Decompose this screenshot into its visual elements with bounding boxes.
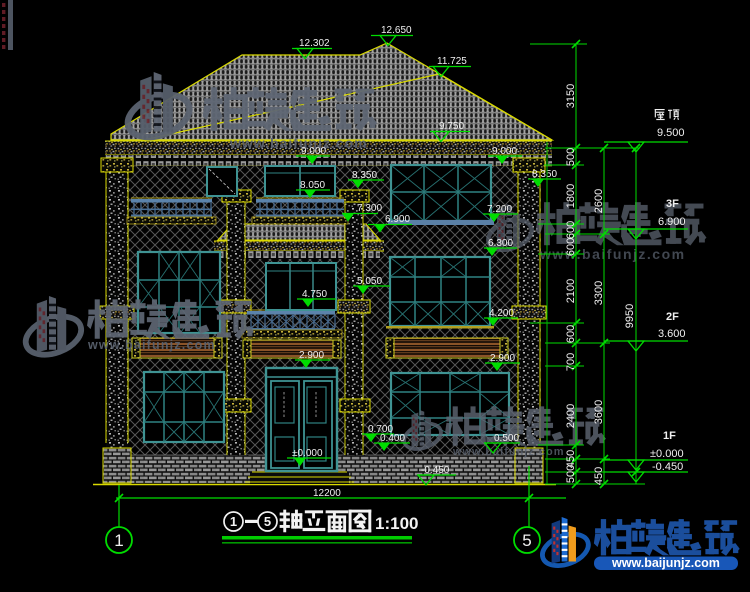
svg-text:9.000: 9.000 (301, 146, 326, 157)
svg-text:1: 1 (230, 514, 237, 529)
svg-text:8.050: 8.050 (300, 180, 325, 191)
svg-text:2.900: 2.900 (299, 350, 324, 361)
svg-text:-0.450: -0.450 (652, 461, 683, 473)
svg-text:2.900: 2.900 (490, 353, 515, 364)
svg-text:5: 5 (264, 514, 271, 529)
svg-text:450: 450 (593, 467, 605, 485)
svg-text:www.baifunjz.com: www.baifunjz.com (87, 338, 216, 352)
svg-text:±0.000: ±0.000 (650, 448, 684, 460)
svg-text:12.650: 12.650 (381, 25, 412, 36)
svg-text:1:100: 1:100 (375, 514, 418, 533)
svg-text:2F: 2F (666, 311, 679, 323)
svg-text:±0.000: ±0.000 (292, 448, 323, 459)
svg-text:5.050: 5.050 (357, 276, 382, 287)
svg-text:9.000: 9.000 (492, 146, 517, 157)
svg-text:www.baifunjz.com: www.baifunjz.com (229, 135, 368, 151)
svg-text:600: 600 (565, 325, 577, 343)
svg-text:11.725: 11.725 (437, 56, 467, 67)
svg-text:5: 5 (522, 531, 531, 550)
svg-text:700: 700 (565, 353, 577, 371)
svg-text:9.500: 9.500 (657, 127, 685, 139)
svg-text:500: 500 (565, 465, 577, 483)
svg-text:2100: 2100 (565, 279, 577, 303)
svg-text:4.200: 4.200 (489, 308, 514, 319)
svg-text:1800: 1800 (565, 184, 577, 208)
svg-text:500: 500 (565, 148, 577, 166)
svg-text:1: 1 (114, 531, 123, 550)
svg-text:www.baifunjz.com: www.baifunjz.com (452, 446, 565, 458)
svg-text:600: 600 (565, 238, 577, 256)
svg-text:9.750: 9.750 (439, 121, 464, 132)
svg-text:0.400: 0.400 (380, 433, 405, 444)
svg-text:9950: 9950 (624, 304, 636, 328)
svg-text:3150: 3150 (565, 84, 577, 108)
svg-text:www.baijunjz.com: www.baijunjz.com (611, 556, 720, 570)
svg-text:2400: 2400 (565, 404, 577, 428)
svg-text:8.350: 8.350 (532, 169, 557, 180)
svg-text:7.200: 7.200 (487, 204, 512, 215)
svg-text:6.900: 6.900 (658, 216, 686, 228)
svg-text:6.300: 6.300 (488, 238, 513, 249)
svg-text:4.750: 4.750 (302, 289, 327, 300)
svg-text:6.900: 6.900 (385, 214, 410, 225)
svg-text:3F: 3F (666, 198, 679, 210)
svg-text:3600: 3600 (593, 400, 605, 424)
svg-text:12200: 12200 (313, 488, 341, 499)
svg-text:1F: 1F (663, 430, 676, 442)
svg-text:2600: 2600 (593, 189, 605, 213)
svg-text:3300: 3300 (593, 281, 605, 305)
svg-text:8.350: 8.350 (352, 170, 377, 181)
svg-text:12.302: 12.302 (299, 38, 330, 49)
svg-text:7.300: 7.300 (357, 203, 382, 214)
svg-text:3.600: 3.600 (658, 328, 686, 340)
svg-text:600: 600 (565, 221, 577, 239)
